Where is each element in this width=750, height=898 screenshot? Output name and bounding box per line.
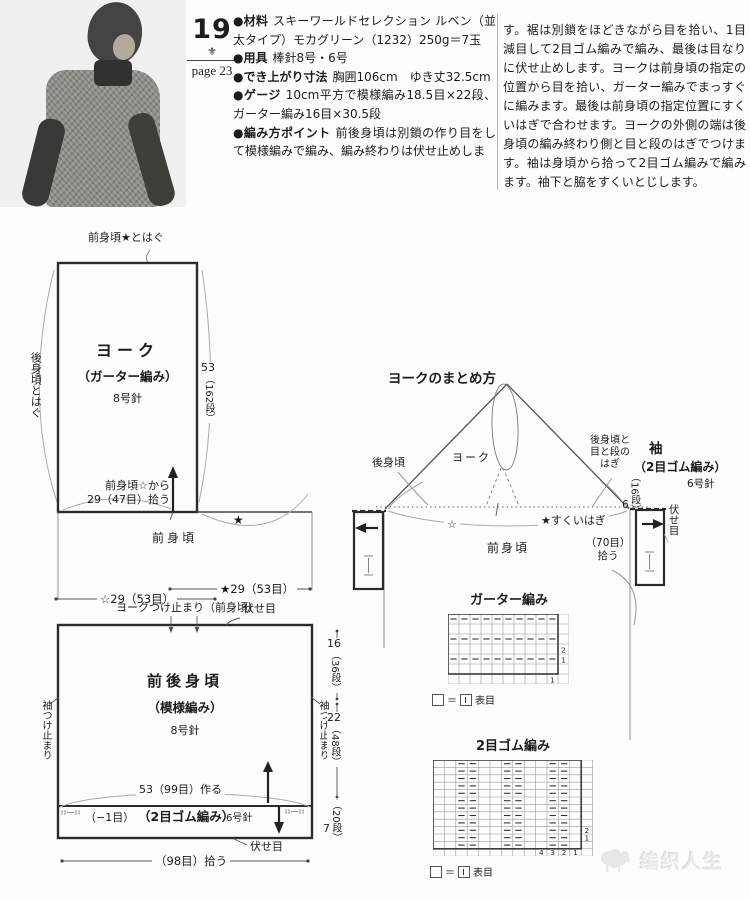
- assembly-pickup-label: （70目） 拾う: [584, 537, 632, 563]
- star-width-measure: ★29（53目）: [217, 582, 297, 597]
- yoke-rows-count: （162段）: [203, 374, 213, 423]
- assembly-sleeve-dim-cm: 6: [622, 500, 629, 512]
- assembly-yoke-label: ヨーク: [452, 451, 491, 465]
- body-dim-rib-cm: 7: [323, 823, 330, 835]
- empty-square-symbol: [430, 866, 442, 878]
- knit-stitch-symbol: [460, 694, 472, 706]
- body-minus-label: （−1目）: [85, 811, 134, 825]
- yoke-stitch: （ガーター編み）: [58, 369, 197, 385]
- assembly-graft-label: ★すくいはぎ: [538, 514, 609, 528]
- watermark: 编织人生: [594, 845, 724, 875]
- rib-legend-label: 表目: [473, 864, 493, 879]
- svg-text:2: 2: [561, 647, 565, 655]
- garter-legend-label: 表目: [475, 692, 495, 707]
- assembly-title: ヨークのまとめ方: [388, 371, 496, 389]
- assembly-pickup-line1: （70目）: [584, 537, 632, 550]
- yoke-needle: 8号針: [58, 392, 197, 406]
- legend-equals: ＝: [445, 864, 455, 879]
- body-dim-upper: 16 （36段）: [327, 638, 341, 693]
- yoke-rows-cm: 53: [201, 362, 215, 374]
- empty-square-symbol: [432, 694, 444, 706]
- assembly-sleeve-dim-rows: （16段）: [629, 472, 639, 515]
- yoke-pickup-line2: 29（47目）拾う: [78, 493, 170, 507]
- yoke-rows-dimension: 53 （162段）: [201, 362, 215, 423]
- assembly-sleeve-dim: 6 （16段）: [622, 472, 639, 515]
- yoke-pickup-line1: 前身頃☆から: [78, 479, 170, 493]
- assembly-back-body-label: 後身頃: [372, 456, 405, 470]
- assembly-bindoff-label: 伏せ目: [666, 504, 680, 536]
- body-rib-stitch: （2目ゴム編み）: [138, 809, 234, 825]
- body-dim-rib: 7 （20段）: [323, 800, 340, 843]
- body-dim-upper-rows: （36段）: [329, 650, 339, 693]
- diagram-lines: [0, 0, 750, 898]
- body-needle: 8号針: [58, 724, 312, 738]
- pattern-page: 19 ⚜ page 23 ●材料スキーワールドセレクション ルベン（並太タイプ）…: [0, 0, 750, 898]
- legend-equals: ＝: [447, 692, 457, 707]
- body-dim-lower-rows: （48段）: [329, 724, 339, 767]
- body-cast-on-label: 53（99目）作る: [136, 783, 225, 797]
- yoke-top-seam-label: 前身頃★とはぐ: [88, 231, 164, 245]
- rib-stitch-chart: 214321: [433, 760, 593, 860]
- body-sleeve-stop-left: 袖つけ止まり: [39, 700, 52, 760]
- svg-text:1: 1: [550, 677, 554, 685]
- body-rib-needle: 6号針: [226, 812, 252, 825]
- body-dim-upper-cm: 16: [327, 638, 341, 650]
- assembly-pickup-line2: 拾う: [584, 550, 632, 563]
- rib-chart-legend: ＝ 表目: [430, 864, 493, 879]
- yoke-pickup-label: 前身頃☆から 29（47目）拾う: [78, 479, 170, 508]
- body-name: 前後身頃: [58, 672, 312, 692]
- svg-text:1: 1: [585, 834, 589, 842]
- yoke-front-body-label: 前身頃: [152, 531, 197, 547]
- assembly-seam-line1: 後身頃と: [584, 435, 636, 447]
- svg-text:3: 3: [550, 849, 554, 856]
- sheep-logo-icon: [594, 845, 634, 875]
- assembly-seam-line2: 目と段の: [584, 447, 636, 459]
- svg-text:1: 1: [561, 657, 565, 665]
- body-dim-lower: 22 （48段）: [327, 712, 341, 767]
- assembly-seam-note: 後身頃と 目と段の はぎ: [584, 435, 636, 471]
- body-dim-rib-rows: （20段）: [330, 800, 340, 843]
- garter-chart-legend: ＝ 表目: [432, 692, 495, 707]
- assembly-seam-line3: はぎ: [584, 459, 636, 471]
- body-dim-lower-cm: 22: [327, 712, 341, 724]
- svg-text:4: 4: [539, 849, 544, 856]
- svg-text:2: 2: [562, 849, 566, 856]
- svg-text:1: 1: [573, 849, 577, 856]
- body-yoke-attach-label: ヨークつけ止まり（前身頃）: [116, 601, 259, 615]
- knit-stitch-symbol: [458, 866, 470, 878]
- assembly-open-star-mark: ☆: [444, 518, 460, 532]
- garter-stitch-chart: 211: [448, 614, 569, 688]
- body-pickup-bottom-label: （98目）拾う: [152, 854, 230, 869]
- rib-chart-title: 2目ゴム編み: [433, 739, 593, 756]
- body-bindoff-bottom-label: 伏せ目: [250, 840, 283, 854]
- body-bindoff-top-label: 伏せ目: [243, 602, 276, 616]
- yoke-star-mark: ★: [233, 513, 244, 529]
- watermark-text: 编织人生: [640, 847, 724, 874]
- assembly-front-body-label: 前身頃: [487, 541, 529, 557]
- body-stitch: （模様編み）: [58, 700, 312, 716]
- garter-chart-title: ガーター編み: [448, 593, 570, 610]
- assembly-sleeve-needle: 6号針: [687, 478, 715, 492]
- assembly-sleeve-stitch: （2目ゴム編み）: [634, 460, 726, 476]
- yoke-name: ヨーク: [58, 341, 197, 362]
- yoke-left-seam-label: 後身頃とはぐ: [28, 352, 42, 418]
- assembly-sleeve-label: 袖: [649, 441, 663, 459]
